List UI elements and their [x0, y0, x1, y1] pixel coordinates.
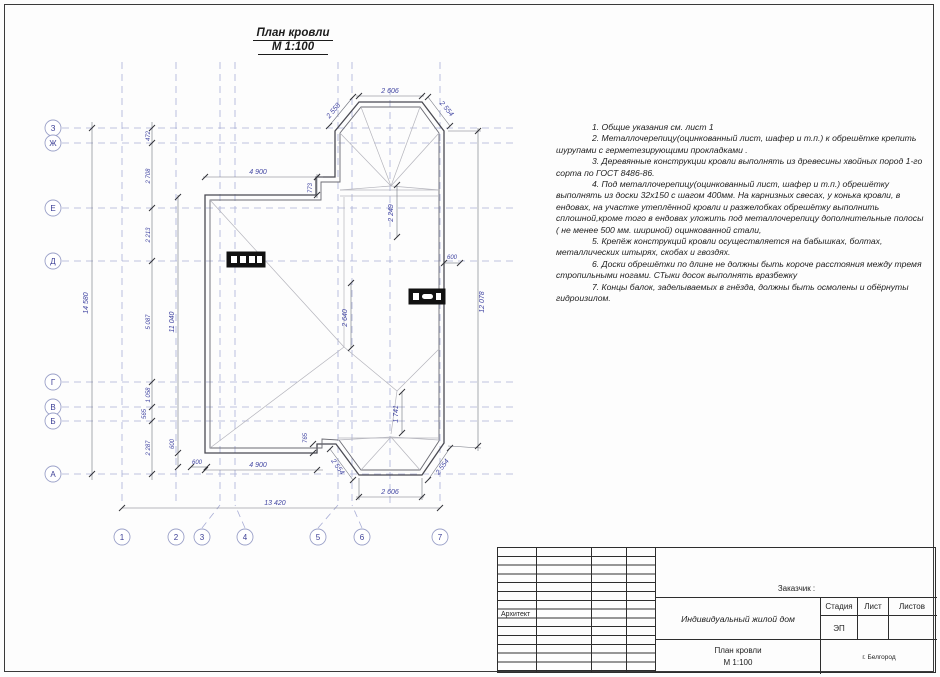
dim-notch-bottom: 765: [303, 432, 309, 443]
roof-hip-valley-lines: [210, 107, 439, 470]
dim-bay-top-depth: 2 249: [388, 204, 395, 223]
axis-label-e: Е: [50, 204, 55, 213]
axis-label-3: 3: [200, 533, 205, 542]
dim-bay-bottom-left: 2 554: [329, 457, 346, 476]
note-item: 6. Доски обрешётки по длине не должны бы…: [556, 259, 928, 282]
dim-overall-height: 14 580: [83, 292, 90, 314]
dim-overall-width: 13 420: [264, 500, 286, 507]
axis-label-5: 5: [316, 533, 321, 542]
dim-bottom-width: 4 900: [249, 462, 267, 469]
dim-chain-2: 2 708: [146, 168, 152, 185]
dim-top-width: 4 900: [249, 169, 267, 176]
document-title-cell: План кровли М 1:100: [656, 640, 821, 674]
sheets-value: [889, 616, 935, 640]
note-item: 5. Крепёж конструкций кровли осуществляе…: [556, 236, 928, 259]
chimney-symbol-right: [409, 289, 445, 304]
roof-wall-outline: [210, 107, 439, 470]
axis-label-6: 6: [360, 533, 365, 542]
dim-eave-left-h: 600: [192, 460, 203, 466]
architect-label: Архитект: [501, 611, 530, 618]
city-cell: г. Белгород: [821, 640, 937, 674]
dim-chain-1: 472: [146, 130, 152, 141]
dim-bay-top-left: 2 558: [325, 102, 342, 121]
axis-label-2: 2: [174, 533, 179, 542]
general-notes: 1. Общие указания см. лист 1 2. Металлоч…: [556, 122, 928, 305]
roof-outline: [205, 102, 444, 475]
roof-eaves-outline: [205, 102, 444, 475]
dim-inner-height: 11 040: [169, 311, 176, 332]
axis-label-7: 7: [438, 533, 443, 542]
title-block: Архитект Заказчик : Индивидуальный жилой…: [497, 547, 936, 673]
dim-right-height: 12 078: [479, 291, 486, 313]
doc-scale: М 1:100: [724, 657, 753, 669]
axis-label-4: 4: [243, 533, 248, 542]
customer-label: Заказчик :: [778, 584, 815, 593]
note-item: 3. Деревянные конструкции кровли выполня…: [556, 156, 928, 179]
title-block-main: Заказчик : Индивидуальный жилой дом Стад…: [656, 548, 937, 672]
sheet-value: [858, 616, 889, 640]
dim-bay-bottom-bottom: 2 606: [380, 489, 399, 496]
dim-eave-right: 600: [447, 255, 458, 261]
dim-chain-4: 5 087: [146, 314, 152, 330]
axis-label-1: 1: [120, 533, 125, 542]
axis-bubbles: З Ж Е Д Г В Б А 1 2 3 4 5 6 7: [45, 120, 448, 545]
dim-bay-top-top: 2 606: [380, 88, 399, 95]
stage-label: Стадия: [821, 598, 858, 615]
axis-label-z: З: [51, 124, 56, 133]
sheet-label: Лист: [858, 598, 889, 615]
note-item: 4. Под металлочерепицу(оцинкованный лист…: [556, 179, 928, 236]
dim-valley-length: 1 741: [393, 405, 400, 423]
dim-chain-5: 1 058: [146, 387, 152, 403]
stage-value: ЭП: [821, 616, 858, 640]
dim-chain-7: 2 287: [146, 440, 152, 457]
axis-label-v: В: [50, 403, 55, 412]
chimney-symbol-left: [227, 252, 265, 267]
axis-label-a: А: [50, 470, 56, 479]
note-item: 7. Концы балок, заделываемых в гнёзда, д…: [556, 282, 928, 305]
doc-title: План кровли: [714, 645, 761, 657]
note-item: 2. Металлочерепицу(оцинкованный лист, ша…: [556, 133, 928, 156]
title-block-signature-table: Архитект: [498, 548, 656, 672]
dim-notch-top: 773: [308, 182, 314, 193]
dim-chain-3: 2 213: [146, 227, 152, 244]
sheets-label: Листов: [889, 598, 935, 615]
axis-label-zh: Ж: [49, 139, 57, 148]
axis-label-g: Г: [51, 378, 56, 387]
project-name: Индивидуальный жилой дом: [656, 598, 821, 639]
drawing-sheet: { "sheet": { "title": "План кровли", "sc…: [0, 0, 940, 677]
dim-eave-left-v: 600: [170, 438, 176, 449]
dim-chain-6: 565: [142, 408, 148, 419]
grid-lines: [62, 62, 516, 528]
dim-ridge-length: 2 640: [342, 309, 349, 328]
note-item: 1. Общие указания см. лист 1: [556, 122, 928, 133]
axis-label-d: Д: [50, 257, 56, 266]
axis-label-b: Б: [50, 417, 55, 426]
